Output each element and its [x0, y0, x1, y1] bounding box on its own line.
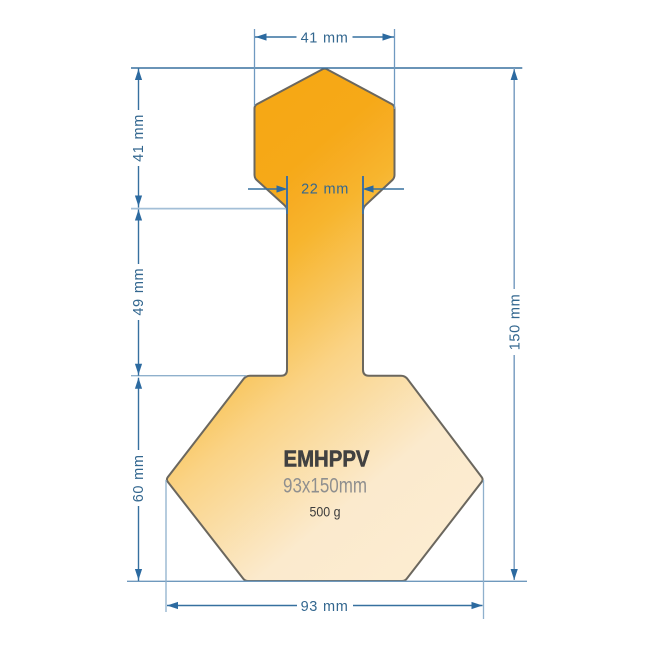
svg-text:60 mm: 60 mm: [131, 454, 147, 502]
svg-text:500 g: 500 g: [310, 504, 341, 520]
svg-text:93x150mm: 93x150mm: [283, 475, 367, 498]
svg-text:49 mm: 49 mm: [131, 268, 147, 316]
svg-text:93 mm: 93 mm: [301, 599, 349, 615]
svg-text:41 mm: 41 mm: [301, 31, 349, 47]
svg-text:41 mm: 41 mm: [131, 114, 147, 162]
svg-text:150 mm: 150 mm: [508, 294, 524, 350]
svg-text:22 mm: 22 mm: [301, 181, 349, 197]
svg-text:EMHPPV: EMHPPV: [284, 446, 371, 472]
